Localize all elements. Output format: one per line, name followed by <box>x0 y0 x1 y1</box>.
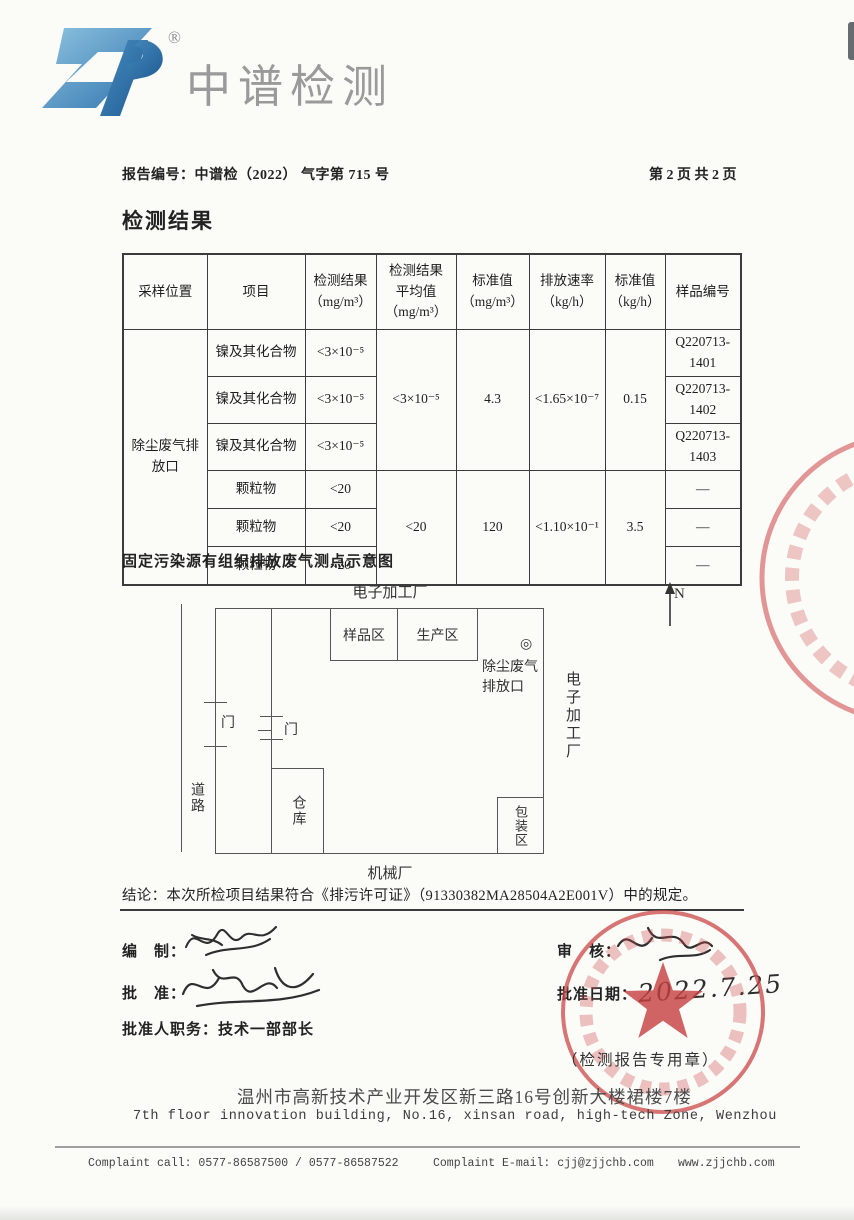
approver-signature <box>175 958 325 1014</box>
approver-title: 技术一部部长 <box>218 1022 314 1038</box>
header-result: 检测结果 （mg/m³） <box>305 254 376 330</box>
address-english: 7th floor innovation building, No.16, xi… <box>133 1109 777 1124</box>
cell-rate: <1.65×10⁻⁷ <box>529 330 605 471</box>
packing-area-box: 包装区 <box>497 797 544 854</box>
header-item: 项目 <box>207 254 305 330</box>
zp-logo-mark <box>36 20 186 124</box>
header-standard-mg: 标准值 （mg/m³） <box>456 254 529 330</box>
diagram-title: 固定污染源有组织排放废气测点示意图 <box>122 550 394 571</box>
page-indicator: 第 2 页 共 2 页 <box>649 164 737 184</box>
header-location: 采样位置 <box>123 254 207 330</box>
road-line <box>181 604 182 852</box>
production-area-label: 生产区 <box>398 609 477 660</box>
gate1-label: 门 <box>221 712 235 732</box>
cell-sample-no: Q220713-1401 <box>665 330 741 377</box>
scanned-report-page: ® 中谱检测 报告编号：中谱检（2022） 气字第 715 号 第 2 页 共 … <box>0 0 854 1220</box>
cell-result: <3×10⁻⁵ <box>305 423 376 470</box>
cell-sample-no: — <box>665 508 741 546</box>
cell-result: <20 <box>305 508 376 546</box>
gate2-tick-mid <box>258 730 272 731</box>
cell-standard-kg: 3.5 <box>605 470 665 585</box>
north-arrow-icon <box>660 580 710 628</box>
table-row: 颗粒物 <20 <20 120 <1.10×10⁻¹ 3.5 — <box>123 470 741 508</box>
gate1-tick-top <box>204 702 227 703</box>
header-average: 检测结果 平均值 （mg/m³） <box>376 254 456 330</box>
gate2-label: 门 <box>284 719 298 739</box>
cell-standard-kg: 0.15 <box>605 330 665 471</box>
stamp-caption: （检测报告专用章） <box>562 1048 720 1070</box>
site-diagram: N 电子加工厂 样品区 生产区 ◎ 除尘废气 排放口 电子加工厂 道路 门 门 <box>170 578 770 908</box>
cell-location: 除尘废气排放口 <box>123 330 207 585</box>
section-title-results: 检测结果 <box>122 205 214 235</box>
header-rate: 排放速率 （kg/h） <box>529 254 605 330</box>
north-label: N <box>674 586 685 603</box>
cell-rate: <1.10×10⁻¹ <box>529 470 605 585</box>
gate2-tick-bottom <box>260 739 283 740</box>
cell-average: <3×10⁻⁵ <box>376 330 456 471</box>
road-label: 道路 <box>186 782 206 814</box>
cell-item: 镍及其化合物 <box>207 423 305 470</box>
complaint-call: Complaint call: 0577-86587500 / 0577-865… <box>88 1157 399 1170</box>
cell-standard-mg: 4.3 <box>456 330 529 471</box>
cell-item: 镍及其化合物 <box>207 376 305 423</box>
gate2-tick-top <box>260 716 283 717</box>
approver-title-label: 批准人职务：技术一部部长 <box>122 1018 314 1039</box>
brand-name: 中谱检测 <box>186 50 394 115</box>
report-number: 报告编号：中谱检（2022） 气字第 715 号 <box>122 164 390 184</box>
gate1-tick-bottom <box>204 746 227 747</box>
packing-area-label: 包装区 <box>511 805 530 847</box>
cell-result: <3×10⁻⁵ <box>305 330 376 377</box>
header-standard-kg: 标准值 （kg/h） <box>605 254 665 330</box>
results-table: 采样位置 项目 检测结果 （mg/m³） 检测结果 平均值 （mg/m³） 标准… <box>122 253 742 586</box>
zp-logo <box>36 20 186 124</box>
cell-result: <20 <box>305 470 376 508</box>
partial-edge-stamp <box>744 430 854 730</box>
outlet-label-line2: 排放口 <box>482 678 524 698</box>
warehouse-box: 仓库 <box>271 768 324 854</box>
warehouse-label: 仓库 <box>288 795 308 827</box>
cell-item: 镍及其化合物 <box>207 330 305 377</box>
scan-artifact <box>848 22 854 60</box>
address-chinese: 温州市高新技术产业开发区新三路16号创新大楼裙楼7楼 <box>237 1084 692 1109</box>
cell-result: <3×10⁻⁵ <box>305 376 376 423</box>
cell-item: 颗粒物 <box>207 470 305 508</box>
sample-production-box: 样品区 生产区 <box>330 608 478 661</box>
cell-sample-no: Q220713-1402 <box>665 376 741 423</box>
table-header-row: 采样位置 项目 检测结果 （mg/m³） 检测结果 平均值 （mg/m³） 标准… <box>123 254 741 330</box>
outlet-point-icon: ◎ <box>520 636 532 653</box>
footer-divider <box>55 1146 800 1148</box>
cell-item: 颗粒物 <box>207 508 305 546</box>
header-sample-no: 样品编号 <box>665 254 741 330</box>
factory-bottom-label: 机械厂 <box>345 862 435 883</box>
table-row: 除尘废气排放口 镍及其化合物 <3×10⁻⁵ <3×10⁻⁵ 4.3 <1.65… <box>123 330 741 377</box>
factory-top-label: 电子加工厂 <box>320 581 460 602</box>
factory-right-label: 电子加工厂 <box>562 671 583 761</box>
cell-sample-no: Q220713-1403 <box>665 423 741 470</box>
complaint-email: Complaint E-mail: cjj@zjjchb.com <box>433 1157 654 1170</box>
sample-area-label: 样品区 <box>331 609 398 660</box>
website: www.zjjchb.com <box>678 1157 775 1170</box>
cell-sample-no: — <box>665 470 741 508</box>
inner-wall-line <box>271 608 272 768</box>
registered-trademark-icon: ® <box>168 28 181 48</box>
scan-edge-band <box>0 1206 854 1220</box>
cell-standard-mg: 120 <box>456 470 529 585</box>
outlet-label-line1: 除尘废气 <box>482 658 538 678</box>
